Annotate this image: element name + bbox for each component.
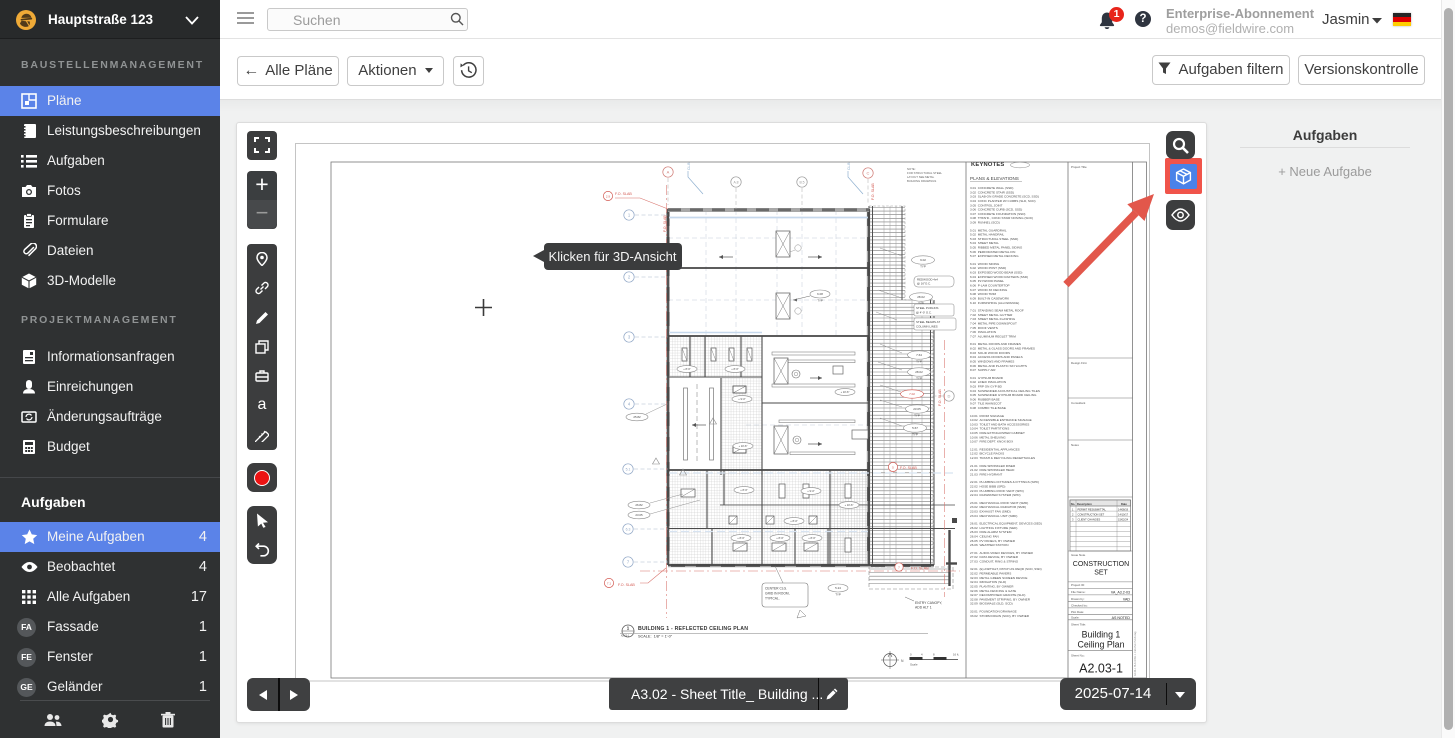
svg-text:TYP: TYP (920, 265, 926, 269)
svg-text:Consultant: Consultant (1071, 401, 1086, 405)
svg-text:Description: Description (1077, 502, 1092, 506)
svg-text:F.O. SLAB: F.O. SLAB (900, 466, 917, 470)
svg-text:A: A (667, 170, 670, 175)
svg-text:+ 8'-6": + 8'-6" (731, 367, 738, 371)
svg-text:TYP: TYP (817, 299, 823, 303)
svg-text:CLIENT CHANGES: CLIENT CHANGES (1078, 518, 1101, 522)
svg-text:10.07 FIRE DEPT. KNOX BOX: 10.07 FIRE DEPT. KNOX BOX (970, 440, 1013, 444)
svg-text:C: C (867, 171, 870, 176)
svg-text:GRID IN ROOM,: GRID IN ROOM, (765, 592, 790, 596)
svg-text:Building 1: Building 1 (1082, 630, 1121, 640)
svg-text:Date: Date (1121, 502, 1127, 506)
svg-text:6.3: 6.3 (626, 528, 631, 532)
svg-text:7.02 SHEET METAL GUTTER: 7.02 SHEET METAL GUTTER (970, 313, 1013, 317)
svg-text:SCALE: 1/8" = 1'-0": SCALE: 1/8" = 1'-0" (638, 635, 673, 639)
svg-text:AS NOTED: AS NOTED (1112, 616, 1131, 620)
svg-text:Project Title: Project Title (1071, 165, 1087, 169)
svg-text:PLANS & ELEVATIONS: PLANS & ELEVATIONS (970, 176, 1019, 181)
svg-text:5.04 SHEET METAL: 5.04 SHEET METAL (970, 241, 999, 245)
svg-text:F.O. SLAB: F.O. SLAB (615, 192, 632, 196)
svg-text:PERMIT RESUBMITTAL: PERMIT RESUBMITTAL (1078, 507, 1107, 511)
svg-text:33.01 FOUNDATION DRAINAGE: 33.01 FOUNDATION DRAINAGE (970, 609, 1017, 613)
svg-text:7.64: 7.64 (916, 353, 922, 357)
svg-text:Project ID:: Project ID: (1071, 583, 1085, 587)
svg-text:32.05 PLANTING, BY OWNER: 32.05 PLANTING, BY OWNER (970, 584, 1014, 588)
svg-text:26.04 CEILING FAN: 26.04 CEILING FAN (970, 534, 999, 538)
svg-text:KEYNOTES: KEYNOTES (971, 162, 1005, 168)
svg-text:F.O. SLAB: F.O. SLAB (938, 389, 942, 406)
svg-text:Design Firm: Design Firm (1071, 361, 1088, 365)
svg-text:COLUMN LINES: COLUMN LINES (916, 325, 938, 329)
svg-text:26.82: 26.82 (635, 503, 643, 507)
svg-text:23.05: 23.05 (635, 513, 643, 517)
svg-text:CL.B: CL.B (687, 162, 691, 170)
svg-text:ADD ALT 1: ADD ALT 1 (915, 606, 932, 610)
svg-text:12.03 TRASH & RECYCLING RECEP: 12.03 TRASH & RECYCLING RECEPTACLES (970, 456, 1035, 460)
svg-text:9.02: 9.02 (920, 258, 926, 262)
svg-text:7.07 ALUMINUM REGLET TRIM: 7.07 ALUMINUM REGLET TRIM (970, 334, 1016, 338)
svg-text:7.02: 7.02 (909, 392, 915, 396)
svg-text:@ 4'-0' O.C.: @ 4'-0' O.C. (916, 311, 932, 315)
svg-text:+ 8'-6": + 8'-6" (683, 367, 690, 371)
svg-text:8.05 WINDOWS AND FRAMES: 8.05 WINDOWS AND FRAMES (970, 359, 1014, 363)
svg-text:+ 8'-6": + 8'-6" (737, 536, 744, 540)
svg-text:28.02: 28.02 (917, 295, 925, 299)
svg-text:File Name:: File Name: (1071, 590, 1086, 594)
svg-text:VAD: VAD (1123, 597, 1131, 601)
svg-text:5.67: 5.67 (912, 426, 918, 430)
svg-text:+ 8'-0": + 8'-0" (790, 519, 797, 523)
svg-text:Scale:: Scale: (1071, 616, 1080, 620)
svg-text:TYPICAL.: TYPICAL. (765, 597, 780, 601)
svg-text:+ 9'-0": + 9'-0" (738, 397, 745, 401)
svg-text:F.O. SLAB: F.O. SLAB (618, 583, 635, 587)
svg-text:ENTRY CANOPY,: ENTRY CANOPY, (915, 601, 942, 605)
svg-text:BUILDING DRAWINGS: BUILDING DRAWINGS (907, 179, 936, 183)
svg-text:STEEL BEAMS AT: STEEL BEAMS AT (916, 320, 940, 324)
svg-text:27.03 CONDUIT, RING & STRING: 27.03 CONDUIT, RING & STRING (970, 559, 1019, 563)
svg-text:TYP: TYP (914, 414, 920, 418)
svg-text:25.82: 25.82 (633, 415, 641, 419)
svg-text:10.05 FIRE EXTINGUISHER CABIN: 10.05 FIRE EXTINGUISHER CABINET (970, 431, 1025, 435)
svg-text:Plot Date:: Plot Date: (1071, 610, 1084, 614)
svg-text:2.9: 2.9 (606, 195, 611, 199)
svg-text:CONSTRUCTION SET: CONSTRUCTION SET (1078, 512, 1105, 516)
svg-text:F.O. SLAB: F.O. SLAB (663, 215, 667, 232)
svg-text:STEEL PURLINS: STEEL PURLINS (916, 306, 938, 310)
svg-text:TYP: TYP (835, 592, 841, 596)
svg-text:14/08/19: 14/08/19 (1118, 507, 1129, 511)
svg-text:+ 10'-6": + 10'-6" (841, 390, 850, 394)
svg-text:8.07 SUPPLY AIR: 8.07 SUPPLY AIR (970, 368, 996, 372)
svg-text:3.08 THKN'D., CONC STAIR NOSI: 3.08 THKN'D., CONC STAIR NOSING (SCD) (970, 216, 1033, 220)
svg-text:D: D (948, 394, 951, 399)
svg-text:9.08 COMBO TILE BASE: 9.08 COMBO TILE BASE (970, 406, 1006, 410)
svg-text:No.: No. (1071, 502, 1076, 506)
svg-text:6.07 WOOD 3X DECKING: 6.07 WOOD 3X DECKING (970, 288, 1008, 292)
svg-text:Notes: Notes (1071, 443, 1079, 447)
svg-text:F.O. SLAB: F.O. SLAB (871, 183, 875, 200)
svg-text:6.02 WOOD POST (SSD): 6.02 WOOD POST (SSD) (970, 266, 1006, 270)
svg-text:5.07 EXPOSED METAL DECKING: 5.07 EXPOSED METAL DECKING (970, 254, 1019, 258)
svg-text:22.02 HOSE BIBB (SPD): 22.02 HOSE BIBB (SPD) (970, 484, 1005, 488)
svg-text:+ 8'-6": + 8'-6" (740, 488, 747, 492)
svg-text:@ 16"O.C.: @ 16"O.C. (917, 282, 931, 286)
svg-text:+ 10'-6": + 10'-6" (739, 444, 748, 448)
svg-text:BUILDING 1 - REFLECTED CEILING: BUILDING 1 - REFLECTED CEILING PLAN (638, 626, 748, 632)
svg-text:+ 9'-0": + 9'-0" (807, 489, 814, 493)
svg-text:32.09 BIOSWALE (SLD, SCD): 32.09 BIOSWALE (SLD, SCD) (970, 602, 1013, 606)
svg-text:TYP: TYP (912, 433, 918, 437)
svg-text:Sheet Title:: Sheet Title: (1071, 623, 1086, 627)
svg-text:6.10 FURNISHING (ALLOWANCE): 6.10 FURNISHING (ALLOWANCE) (970, 301, 1019, 305)
svg-text:16 ft.: 16 ft. (953, 653, 959, 657)
svg-text:26.06 WEATHER STATION: 26.06 WEATHER STATION (970, 543, 1009, 547)
svg-text:+ 10'-6": + 10'-6" (845, 503, 854, 507)
svg-text:Issue Note: Issue Note (1071, 553, 1086, 557)
svg-text:TYP: TYP (916, 360, 922, 364)
svg-text:SET: SET (1094, 570, 1108, 577)
svg-text:A2.03-1 BUILDING 1 CEILING PLA: A2.03-1 BUILDING 1 CEILING PLAN.dwg (1134, 631, 1137, 676)
svg-text:+ 8'-6": + 8'-6" (776, 536, 783, 540)
svg-text:+ 8'-6": + 8'-6" (808, 536, 815, 540)
svg-text:Checked by:: Checked by: (1071, 603, 1088, 607)
svg-text:9.03 FRP ON GYP BD: 9.03 FRP ON GYP BD (970, 384, 1003, 388)
svg-text:CONSTRUCTION: CONSTRUCTION (1073, 561, 1129, 568)
svg-text:A.8: A.8 (733, 181, 738, 185)
svg-text:21.03 FIRE HYDRANT: 21.03 FIRE HYDRANT (970, 472, 1002, 476)
svg-text:23.04 MECHANICAL UNIT (SMD): 23.04 MECHANICAL UNIT (SMD) (970, 514, 1017, 518)
svg-text:Ceiling Plan: Ceiling Plan (1078, 640, 1125, 650)
svg-text:14/10/17: 14/10/17 (1118, 512, 1129, 516)
svg-text:CENTER CLG.: CENTER CLG. (765, 587, 787, 591)
svg-text:33.02 STORM DRAIN (SCD), BY O: 33.02 STORM DRAIN (SCD), BY OWNER (970, 614, 1030, 618)
svg-text:Sheet No.:: Sheet No.: (1071, 654, 1085, 658)
svg-text:5.1: 5.1 (626, 468, 631, 472)
svg-text:CL.B: CL.B (847, 162, 851, 170)
svg-text:TYP: TYP (916, 377, 922, 381)
svg-text:7.1: 7.1 (607, 582, 612, 586)
svg-text:Drawn by:: Drawn by: (1071, 597, 1085, 601)
svg-text:23.03 EXHAUST FAN (SMD): 23.03 EXHAUST FAN (SMD) (970, 509, 1011, 513)
svg-text:VA_A3.2-03: VA_A3.2-03 (1111, 591, 1130, 595)
svg-text:A2.03-1: A2.03-1 (621, 635, 630, 638)
svg-text:3.09 RUNNEL (SCD): 3.09 RUNNEL (SCD) (970, 221, 1000, 225)
svg-text:23.05: 23.05 (913, 407, 921, 411)
svg-text:B.5: B.5 (799, 181, 804, 185)
svg-text:F.O. SLAB: F.O. SLAB (911, 567, 929, 571)
svg-text:Scale: Scale (910, 663, 918, 667)
svg-text:6.08: 6.08 (817, 292, 823, 296)
svg-text:5.24: 5.24 (835, 586, 841, 590)
svg-text:3.03 SLAB-ON GRADE CONCRETE (: 3.03 SLAB-ON GRADE CONCRETE (SCD, SSD) (970, 195, 1039, 199)
svg-text:15/02/24: 15/02/24 (1118, 518, 1129, 522)
svg-text:A2.03-1: A2.03-1 (1079, 662, 1123, 676)
svg-text:28.02: 28.02 (915, 370, 923, 374)
svg-text:22.04 RAINWATER SYSTEM (SPD): 22.04 RAINWATER SYSTEM (SPD) (970, 493, 1021, 497)
